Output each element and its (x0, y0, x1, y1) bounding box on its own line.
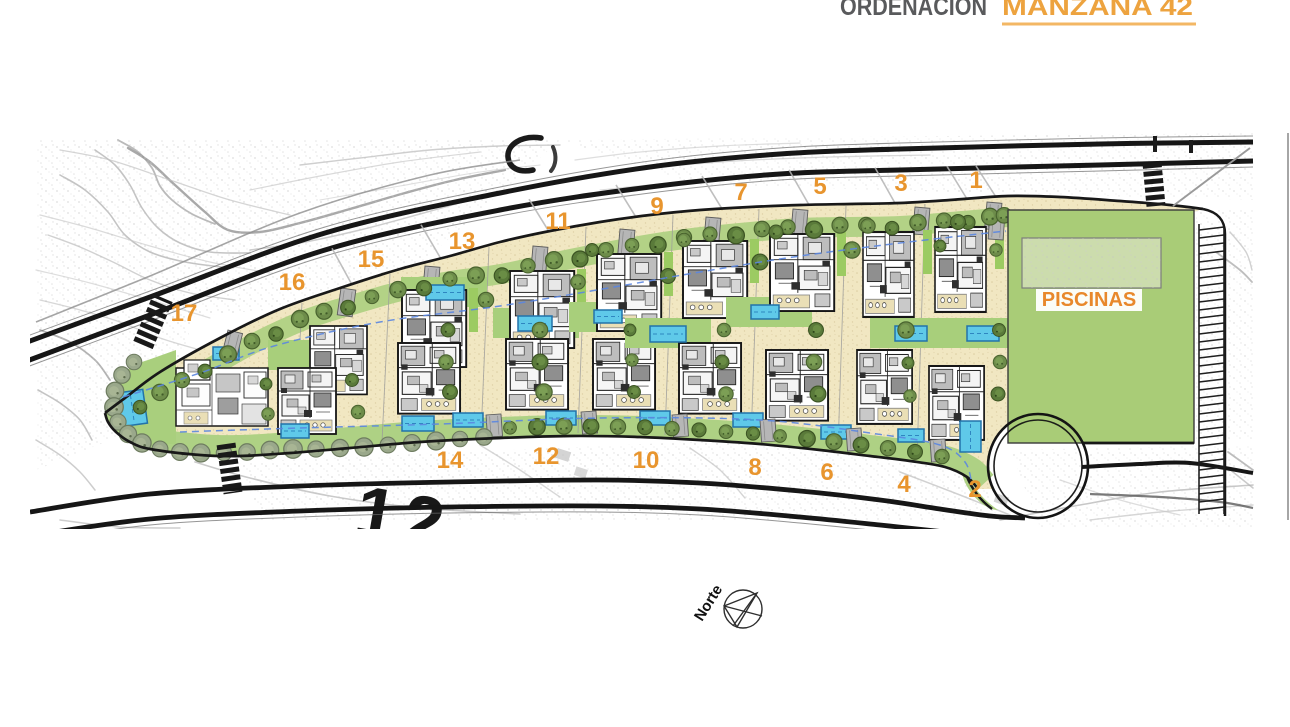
svg-text:PISCINAS: PISCINAS (1042, 289, 1136, 311)
svg-text:9: 9 (650, 193, 663, 220)
svg-text:10: 10 (633, 447, 660, 474)
svg-text:MANZANA 42: MANZANA 42 (1002, 0, 1193, 21)
svg-text:17: 17 (171, 300, 198, 327)
svg-text:1: 1 (969, 167, 982, 194)
svg-text:4: 4 (897, 471, 911, 498)
svg-text:2: 2 (968, 476, 981, 503)
svg-text:11: 11 (545, 208, 570, 235)
svg-text:16: 16 (279, 269, 306, 296)
svg-text:14: 14 (437, 447, 464, 474)
svg-text:15: 15 (358, 246, 385, 273)
svg-text:6: 6 (820, 459, 833, 486)
svg-text:ORDENACIÓN: ORDENACIÓN (840, 0, 987, 21)
svg-text:3: 3 (894, 170, 907, 197)
svg-text:7: 7 (734, 179, 747, 206)
svg-text:8: 8 (748, 454, 761, 481)
svg-text:5: 5 (813, 173, 826, 200)
svg-text:12: 12 (533, 443, 560, 470)
svg-text:13: 13 (449, 228, 476, 255)
